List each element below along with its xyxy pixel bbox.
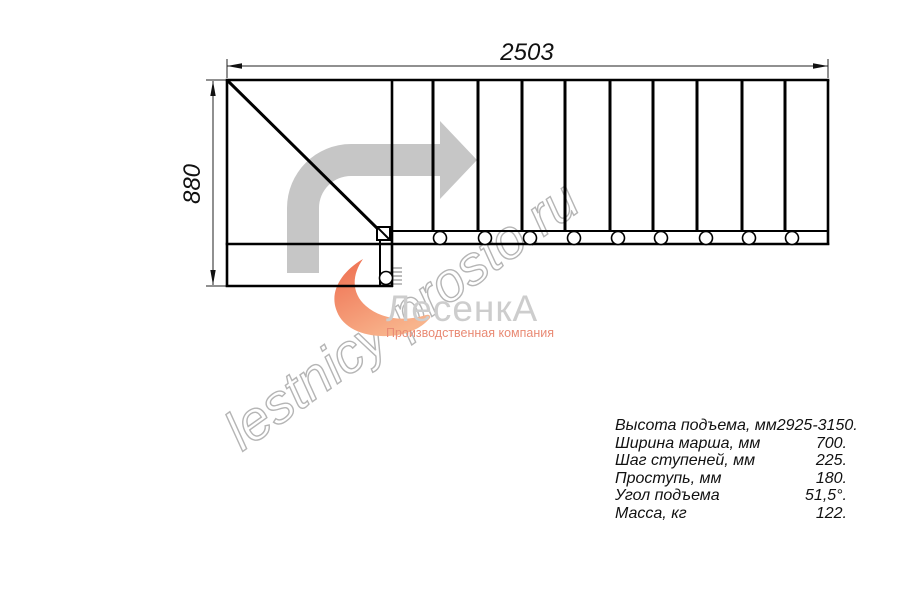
stair-plan-page: lestnicy-prosto.ru ЛесенкА Производствен… [0, 0, 900, 600]
spec-label: Ширина марша, мм [615, 435, 760, 453]
logo-name: ЛесенкА [386, 288, 538, 329]
spec-row: Шаг ступеней, мм 225. [615, 452, 847, 470]
spec-row: Ширина марша, мм 700. [615, 435, 847, 453]
spec-value: 700. [816, 435, 847, 453]
spec-label: Высота подъема, мм [615, 417, 777, 435]
spec-row: Масса, кг 122. [615, 505, 847, 523]
spec-label: Шаг ступеней, мм [615, 452, 755, 470]
dimension-width: 2503 [227, 39, 828, 78]
dimension-height: 880 [179, 80, 226, 286]
spec-row: Высота подъема, мм 2925-3150. [615, 417, 847, 435]
spec-table: Высота подъема, мм 2925-3150. Ширина мар… [615, 417, 847, 522]
spec-value: 51,5°. [805, 487, 847, 505]
spec-label: Масса, кг [615, 505, 687, 523]
tread-lines [433, 80, 785, 231]
spec-row: Проступь, мм 180. [615, 470, 847, 488]
spec-label: Угол подъема [615, 487, 720, 505]
spec-value: 225. [816, 452, 847, 470]
dimension-width-label: 2503 [499, 39, 554, 66]
spec-value: 122. [816, 505, 847, 523]
spec-label: Проступь, мм [615, 470, 721, 488]
spec-row: Угол подъема 51,5°. [615, 487, 847, 505]
dimension-height-label: 880 [179, 163, 206, 204]
spec-value: 2925-3150. [777, 417, 858, 435]
spec-value: 180. [816, 470, 847, 488]
logo-tagline: Производственная компания [386, 326, 554, 340]
